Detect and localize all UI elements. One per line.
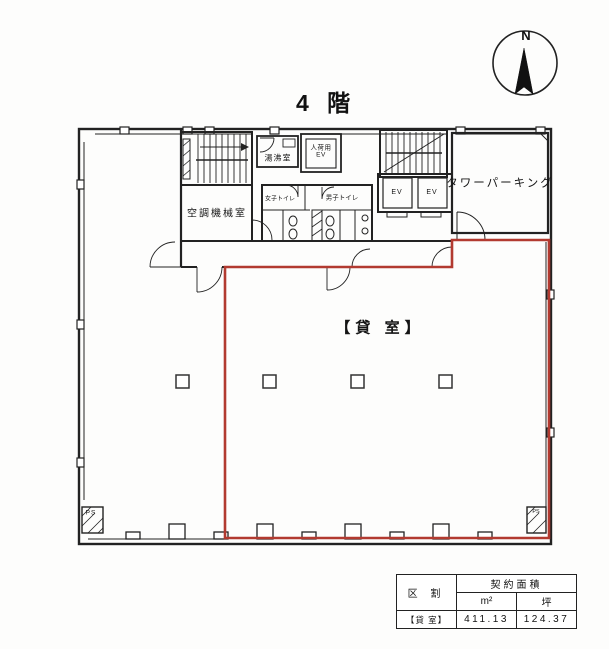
womens-toilet-label: 女子トイレ <box>265 197 295 204</box>
contract-area-table: 区 割 契約面積 m² 坪 【貸 室】 411.13 124.37 <box>396 574 577 629</box>
pipe-shaft-right-label: PS <box>532 509 539 515</box>
pipe-shaft-left-label: PS <box>86 509 97 516</box>
table-row: 区 割 契約面積 <box>397 575 577 593</box>
tower-parking-label: タワーパーキング <box>446 177 554 190</box>
outer-walls <box>79 129 551 544</box>
freight-elevator-label-line1: 人荷用 <box>311 145 332 152</box>
division-header-cell: 区 割 <box>397 575 457 611</box>
table-row: 【貸 室】 411.13 124.37 <box>397 611 577 629</box>
rental-boundary <box>225 240 549 538</box>
kitchenette-label: 湯沸室 <box>265 153 292 162</box>
rental-m2-cell: 411.13 <box>457 611 517 629</box>
unit-tsubo-cell: 坪 <box>517 593 577 611</box>
elevator-shafts <box>378 174 452 217</box>
rental-tsubo-cell: 124.37 <box>517 611 577 629</box>
freight-elevator-label: 人荷用 EV <box>311 145 332 160</box>
stairwell-right <box>380 130 447 177</box>
rental-room-label: 【貸 室】 <box>335 319 424 336</box>
contract-area-header-cell: 契約面積 <box>457 575 577 593</box>
floorplan-drawing <box>0 0 609 649</box>
rental-division-cell: 【貸 室】 <box>397 611 457 629</box>
elevator1-label: EV <box>391 189 402 197</box>
unit-m2-cell: m² <box>457 593 517 611</box>
floorplan-page: 4 階 N <box>0 0 609 649</box>
machine-room-label: 空調機械室 <box>187 208 247 220</box>
freight-elevator-label-line2: EV <box>311 152 332 159</box>
pillars <box>176 375 452 388</box>
elevator2-label: EV <box>426 189 437 197</box>
stairwell-left <box>181 129 252 267</box>
mens-toilet-label: 男子トイレ <box>326 194 359 201</box>
